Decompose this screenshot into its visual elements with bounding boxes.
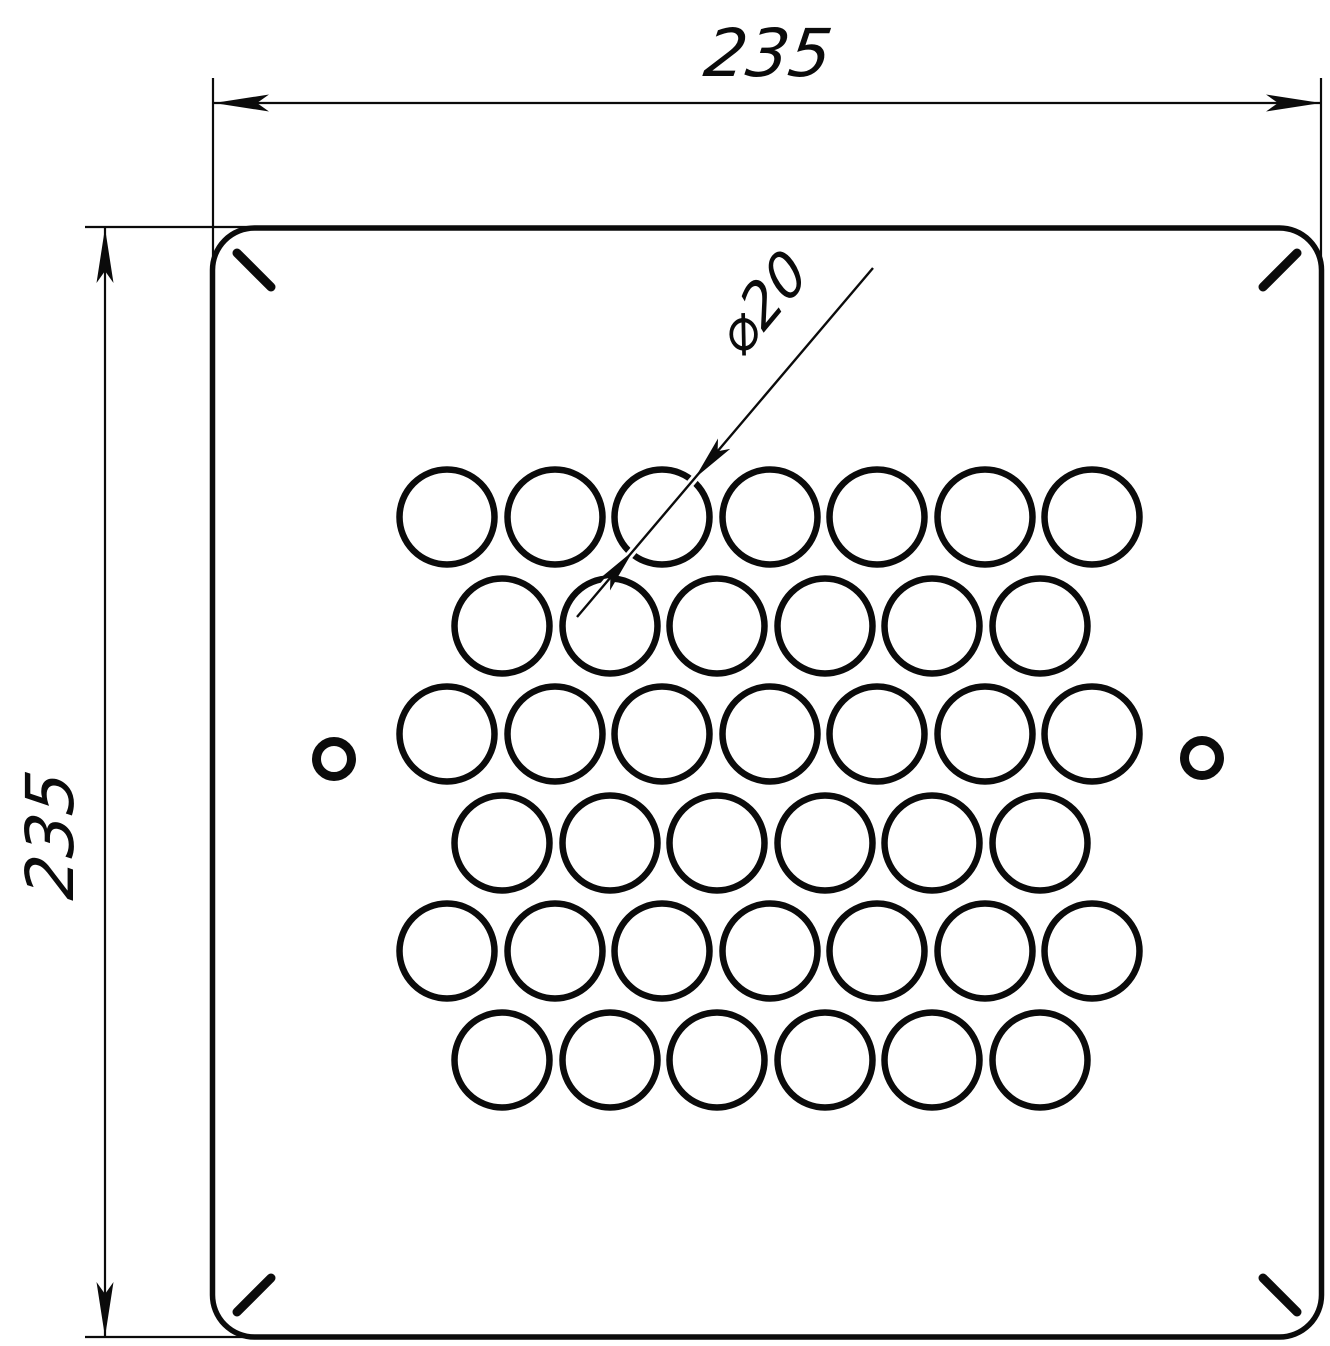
technical-drawing-canvas: 235 235 ⌀20 xyxy=(0,0,1330,1346)
corner-mark-top-left xyxy=(237,253,271,287)
corner-mark-bottom-right xyxy=(1263,1278,1297,1312)
left-dimension: 235 xyxy=(11,227,430,1337)
hole-grid xyxy=(400,470,1140,1108)
side-mounting-holes xyxy=(317,741,1220,777)
corner-mark-top-right xyxy=(1263,253,1297,287)
side-hole-left xyxy=(317,742,352,777)
top-width-label: 235 xyxy=(700,14,837,92)
side-hole-right xyxy=(1185,741,1220,776)
corner-mark-bottom-left xyxy=(237,1278,271,1312)
left-height-label: 235 xyxy=(11,766,89,903)
diameter-callout: ⌀20 xyxy=(577,236,873,617)
plate-drawing-svg: 235 235 ⌀20 xyxy=(0,0,1330,1346)
